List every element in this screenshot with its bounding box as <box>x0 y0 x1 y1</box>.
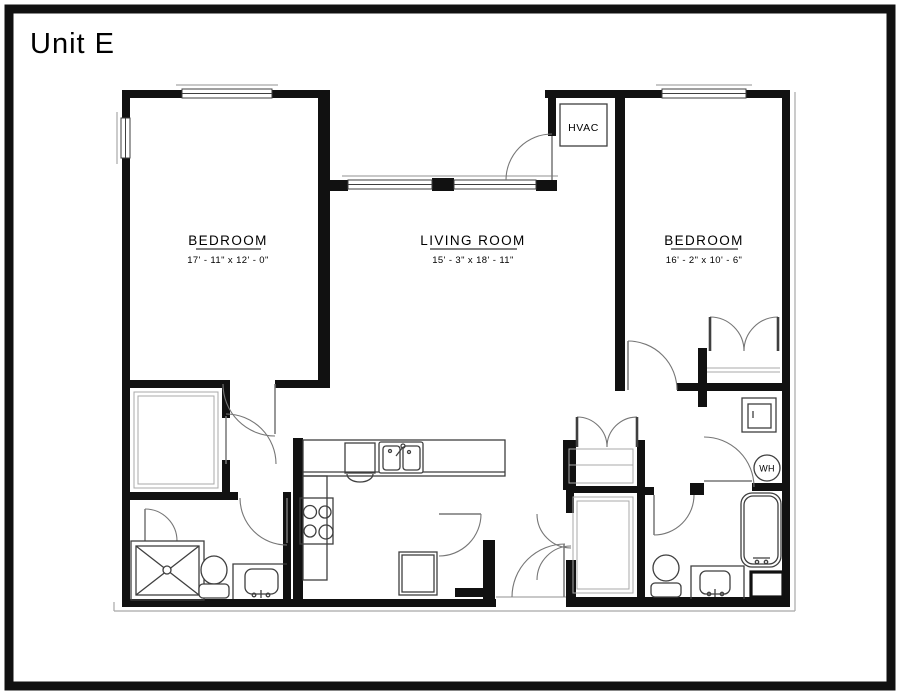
wall-segment <box>330 180 348 191</box>
living-room-dims: 15' - 3" x 18' - 11" <box>432 255 514 266</box>
living-room-name: LIVING ROOM <box>420 233 525 248</box>
stove-burner <box>304 525 316 537</box>
electrical-panel-inner <box>748 404 771 428</box>
wall-segment <box>275 380 330 388</box>
bath2-door-arc <box>654 495 694 535</box>
walkin-closet-shelf <box>134 392 218 488</box>
wall-segment <box>615 90 662 98</box>
floor-plan-drawing: Unit E <box>0 0 900 695</box>
wall-segment <box>752 483 782 491</box>
utility: WH HVAC <box>560 104 780 481</box>
coat-closet-shelf <box>569 449 633 483</box>
closets <box>134 368 780 593</box>
bedroom-left-dims: 17' - 11" x 12' - 0" <box>187 255 269 266</box>
wall-segment <box>548 90 556 136</box>
water-heater-label: WH <box>759 464 774 474</box>
bathroom-left <box>131 541 287 600</box>
walkin-closet-shelf <box>138 396 214 484</box>
footprint-outline <box>114 92 795 611</box>
walls <box>122 90 790 607</box>
page-border <box>9 9 891 686</box>
toilet-bowl <box>201 556 227 584</box>
wall-segment <box>318 90 330 388</box>
wall-segment <box>698 348 707 407</box>
wall-segment <box>637 440 645 599</box>
bedroom2-door-arc <box>628 341 677 390</box>
wall-segment <box>483 540 495 599</box>
closet1-door-arc <box>226 414 276 464</box>
bathtub <box>741 493 781 567</box>
stove <box>300 498 333 544</box>
faucet-knob <box>252 593 256 597</box>
faucet-knob <box>764 560 767 563</box>
bathtub-inner <box>744 496 778 564</box>
hvac-label: HVAC <box>568 122 599 134</box>
wall-segment <box>536 180 557 191</box>
wall-segment <box>566 486 637 493</box>
doors <box>145 134 778 597</box>
wall-segment <box>455 588 483 597</box>
wall-segment <box>122 90 182 98</box>
wall-segment <box>782 90 790 607</box>
wall-segment <box>677 383 782 391</box>
bathroom-right <box>651 493 783 599</box>
bedroom1-door-arc <box>223 384 275 436</box>
wall-segment <box>122 90 130 118</box>
faucet-knob <box>266 593 270 597</box>
bedroom2-closet-door-arc <box>744 317 778 351</box>
hvac-door-arc <box>506 134 552 180</box>
shower-drain <box>163 566 171 574</box>
toilet-bowl <box>653 555 679 581</box>
shower-door-arc <box>145 509 177 541</box>
stove-burner <box>319 525 333 539</box>
windows <box>114 85 795 611</box>
wall-segment <box>545 90 623 98</box>
wall-segment <box>122 380 222 388</box>
toilet-tank <box>199 584 229 598</box>
coat-closet-door-arc <box>607 417 637 447</box>
storage-closet-shelf <box>573 497 633 593</box>
wall-segment <box>690 483 704 495</box>
faucet-knob <box>755 560 758 563</box>
unit-title: Unit E <box>30 28 115 60</box>
kitchen-door-arc <box>439 514 481 556</box>
storage-closet-shelf <box>577 501 629 589</box>
wall-segment <box>122 492 238 500</box>
dishwasher <box>345 443 375 473</box>
stove-burner <box>319 506 331 518</box>
refrigerator-inner <box>402 555 434 592</box>
dishwasher-handle <box>347 474 373 482</box>
refrigerator <box>399 552 437 595</box>
stove-burner <box>304 506 317 519</box>
labels: BEDROOM 17' - 11" x 12' - 0" LIVING ROOM… <box>187 233 744 266</box>
toilet-tank <box>651 583 681 597</box>
wall-segment <box>432 178 454 191</box>
bedroom-left-name: BEDROOM <box>188 233 268 248</box>
wall-segment <box>293 438 303 599</box>
utility-door-arc <box>704 437 754 487</box>
floor-plan-page: Unit E <box>0 0 900 695</box>
storage-closet-door-arc <box>537 546 571 580</box>
bath1-door-arc <box>240 498 287 545</box>
linen-closet <box>751 572 783 597</box>
coat-closet-door-arc <box>577 417 607 447</box>
storage-closet-door-arc <box>537 514 571 548</box>
kitchen <box>300 440 505 595</box>
bedroom2-closet-door-arc <box>710 317 744 351</box>
bedroom-right-dims: 16' - 2" x 10' - 6" <box>666 255 743 266</box>
wall-segment <box>615 98 625 391</box>
wall-segment <box>746 90 782 98</box>
wall-segment <box>645 487 654 495</box>
bedroom-right-name: BEDROOM <box>664 233 744 248</box>
